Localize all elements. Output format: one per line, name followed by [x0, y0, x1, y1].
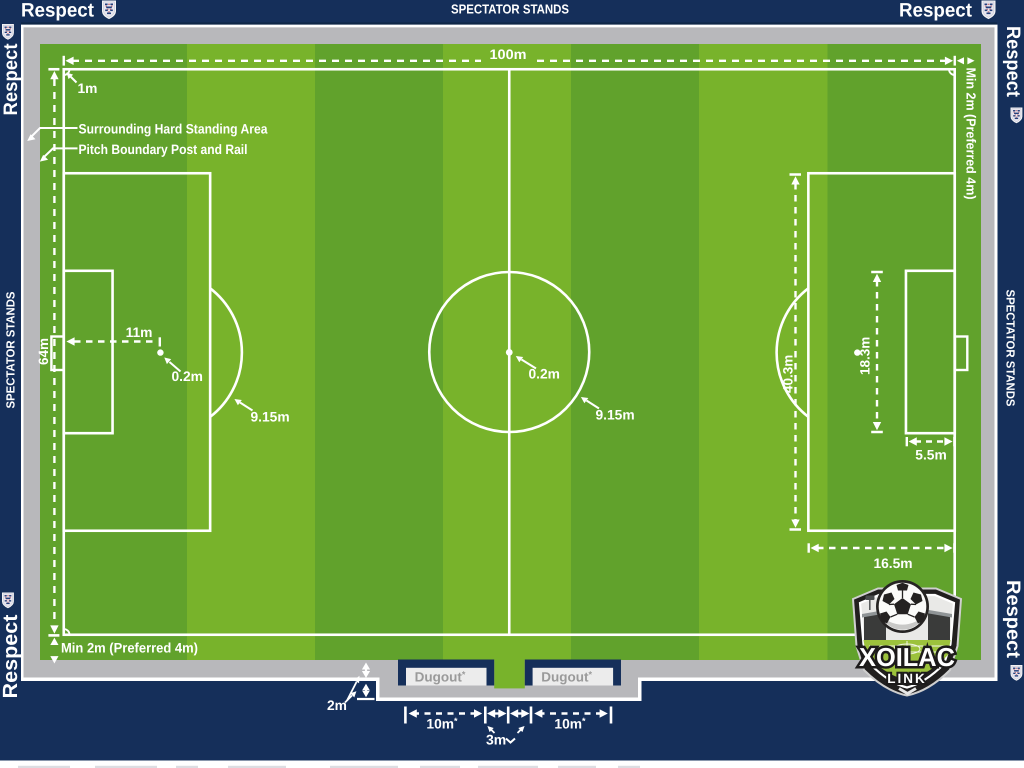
- svg-text:SPECTATOR STANDS: SPECTATOR STANDS: [451, 1, 569, 16]
- svg-text:64m: 64m: [36, 338, 51, 365]
- svg-text:SPECTATOR STANDS: SPECTATOR STANDS: [4, 291, 18, 408]
- svg-text:0.2m: 0.2m: [529, 367, 560, 382]
- svg-text:18.3m: 18.3m: [858, 337, 873, 375]
- svg-text:Respect: Respect: [0, 614, 22, 698]
- svg-text:LINK: LINK: [887, 671, 927, 686]
- svg-text:XOILAC: XOILAC: [859, 642, 955, 672]
- svg-text:9.15m: 9.15m: [251, 410, 290, 425]
- svg-text:Surrounding Hard Standing Area: Surrounding Hard Standing Area: [79, 122, 268, 137]
- svg-text:Dugout*: Dugout*: [415, 670, 466, 685]
- svg-text:Min 2m (Preferred 4m): Min 2m (Preferred 4m): [61, 641, 198, 656]
- svg-text:1m: 1m: [78, 81, 98, 96]
- svg-text:11m: 11m: [126, 325, 153, 340]
- svg-text:Respect: Respect: [899, 0, 972, 22]
- svg-text:40.3m: 40.3m: [781, 355, 796, 393]
- svg-text:10m*: 10m*: [554, 716, 586, 732]
- svg-text:9.15m: 9.15m: [596, 408, 635, 423]
- svg-text:10m*: 10m*: [426, 716, 458, 732]
- svg-text:Respect: Respect: [1002, 580, 1024, 659]
- svg-text:Dugout*: Dugout*: [541, 670, 592, 685]
- svg-text:SPECTATOR STANDS: SPECTATOR STANDS: [1004, 290, 1018, 407]
- svg-text:Min 2m (Preferred 4m): Min 2m (Preferred 4m): [964, 68, 979, 200]
- svg-text:Respect: Respect: [0, 43, 22, 115]
- svg-text:Pitch Boundary Post and Rail: Pitch Boundary Post and Rail: [79, 142, 248, 157]
- svg-text:2m: 2m: [327, 698, 347, 713]
- svg-text:16.5m: 16.5m: [873, 556, 912, 571]
- svg-text:100m: 100m: [490, 47, 527, 62]
- svg-text:3m: 3m: [486, 732, 506, 748]
- svg-text:Respect: Respect: [21, 0, 94, 22]
- svg-text:5.5m: 5.5m: [915, 448, 946, 463]
- svg-text:0.2m: 0.2m: [172, 369, 203, 384]
- svg-text:Respect: Respect: [1002, 26, 1024, 97]
